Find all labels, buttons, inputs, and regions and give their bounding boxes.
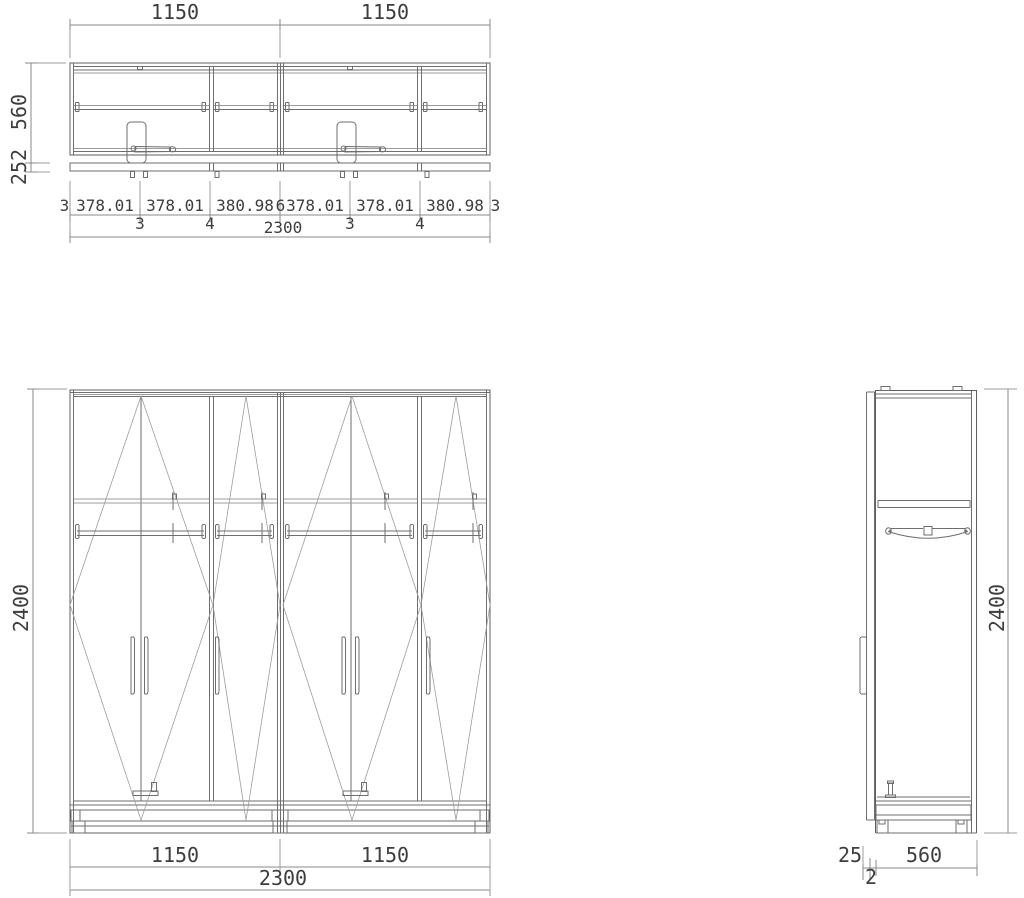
dim-chain-2: 378.01 bbox=[146, 196, 204, 215]
dim-side-handle-depth: 25 bbox=[838, 843, 862, 867]
dim-chain-6: 378.01 bbox=[356, 196, 414, 215]
dim-chain-4: 6 bbox=[276, 196, 286, 215]
dim-chain-3: 380.98 bbox=[216, 196, 274, 215]
front-view bbox=[70, 390, 490, 833]
dim-side-body-depth: 560 bbox=[906, 843, 942, 867]
wardrobe-three-view-drawing: 1150 1150 560 252 3 378.01 378.01 380.98… bbox=[0, 0, 1024, 898]
plan-door-strip bbox=[70, 163, 490, 178]
dim-side-door-gap: 2 bbox=[865, 865, 877, 889]
rail-bracket-icon bbox=[886, 527, 971, 539]
dim-plan-depth: 560 bbox=[7, 94, 31, 130]
dim-chain-0: 3 bbox=[60, 196, 70, 215]
dim-gap-3: 4 bbox=[415, 214, 425, 233]
dim-chain-8: 3 bbox=[491, 196, 501, 215]
plan-carcass bbox=[70, 63, 490, 155]
dim-front-total: 2300 bbox=[259, 866, 307, 890]
dim-plan-front-offset: 252 bbox=[7, 149, 31, 185]
door-handle-icon bbox=[860, 637, 867, 694]
plan-view bbox=[70, 63, 490, 178]
front-frame bbox=[70, 390, 490, 833]
dim-front-module-left: 1150 bbox=[151, 843, 199, 867]
lock-bracket-icon bbox=[133, 783, 158, 796]
dim-front-height: 2400 bbox=[9, 584, 33, 632]
plan-dimensions: 1150 1150 560 252 3 378.01 378.01 380.98… bbox=[7, 0, 500, 243]
side-dimensions: 2400 25 560 2 bbox=[838, 389, 1017, 889]
dim-gap-1: 4 bbox=[205, 214, 215, 233]
dim-gap-2: 3 bbox=[345, 214, 355, 233]
dim-front-module-right: 1150 bbox=[361, 843, 409, 867]
dim-plan-total: 2300 bbox=[264, 218, 303, 237]
bolt-icon bbox=[886, 781, 896, 798]
dim-chain-5: 378.01 bbox=[286, 196, 344, 215]
side-frame bbox=[867, 387, 977, 834]
lock-bracket-icon bbox=[343, 783, 368, 796]
lock-icon bbox=[127, 122, 176, 163]
cad-drawing-canvas: 1150 1150 560 252 3 378.01 378.01 380.98… bbox=[0, 0, 1024, 898]
dim-chain-7: 380.98 bbox=[426, 196, 484, 215]
side-view bbox=[860, 387, 977, 834]
dim-plan-width-right: 1150 bbox=[361, 0, 409, 24]
dim-gap-0: 3 bbox=[135, 214, 145, 233]
dim-chain-1: 378.01 bbox=[76, 196, 134, 215]
lock-icon bbox=[337, 122, 386, 163]
shelf-clip-icon bbox=[173, 492, 477, 510]
dim-plan-width-left: 1150 bbox=[151, 0, 199, 24]
dim-side-height: 2400 bbox=[985, 584, 1009, 632]
